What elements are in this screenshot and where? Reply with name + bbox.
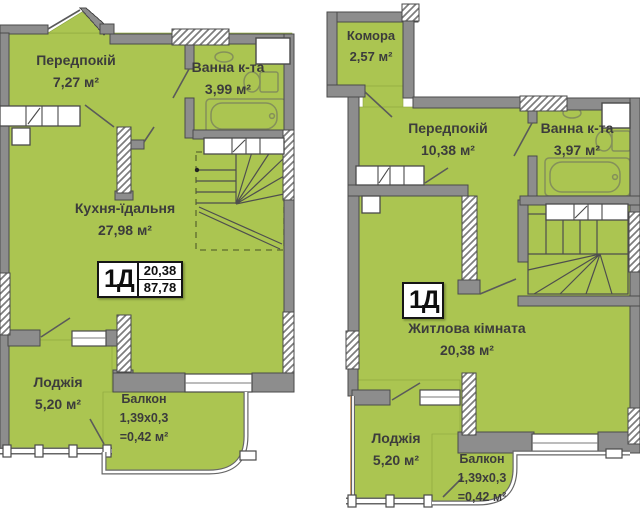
room-name: Лоджія	[6, 371, 110, 393]
apartment-type: 1Д	[99, 263, 137, 296]
room-name: Ванна к-та	[176, 56, 280, 78]
room-label-hallway-2: Передпокій 10,38 м²	[380, 117, 516, 162]
room-name: Ванна к-та	[524, 117, 630, 139]
room-label-storage-2: Комора 2,57 м²	[333, 26, 409, 68]
window-living-level-2	[532, 434, 598, 452]
room-label-loggia-1: Лоджія 5,20 м²	[6, 371, 110, 416]
room-label-living-2: Житлова кімната 20,38 м²	[383, 317, 551, 362]
room-name: Балкон	[98, 390, 190, 409]
room-label-balcony-2: Балкон 1,39х0,3 =0,42 м²	[436, 450, 528, 506]
room-area: 3,99 м²	[176, 78, 280, 100]
floorplan-canvas: Передпокій 7,27 м² Ванна к-та 3,99 м² Ку…	[0, 0, 640, 518]
apartment-badge-level-1: 1Д 20,38 87,78	[97, 261, 183, 298]
room-area: 7,27 м²	[12, 71, 140, 93]
room-area: 5,20 м²	[343, 449, 449, 471]
room-area: 27,98 м²	[45, 219, 205, 241]
room-dimensions: 1,39х0,3	[98, 409, 190, 428]
room-label-kitchen-1: Кухня-їдальня 27,98 м²	[45, 197, 205, 242]
apartment-badge-level-2: 1Д	[402, 282, 444, 319]
room-name: Комора	[333, 26, 409, 47]
apartment-area-total: 87,78	[139, 279, 182, 296]
room-label-balcony-1: Балкон 1,39х0,3 =0,42 м²	[98, 390, 190, 446]
room-area: 5,20 м²	[6, 393, 110, 415]
room-label-bathroom-1: Ванна к-та 3,99 м²	[176, 56, 280, 101]
cabinet-bath-level-2	[546, 204, 628, 220]
room-area: =0,42 м²	[98, 428, 190, 447]
room-name: Житлова кімната	[383, 317, 551, 339]
cabinet-bath-level-1	[204, 138, 284, 154]
room-name: Передпокій	[380, 117, 516, 139]
room-area: 2,57 м²	[333, 47, 409, 68]
room-name: Лоджія	[343, 427, 449, 449]
window-loggia-level-1	[72, 331, 106, 346]
room-name: Балкон	[436, 450, 528, 469]
window-kitchen-level-1	[185, 374, 252, 392]
room-dimensions: 1,39х0,3	[436, 469, 528, 488]
room-area: 3,97 м²	[524, 139, 630, 161]
room-label-loggia-2: Лоджія 5,20 м²	[343, 427, 449, 472]
apartment-type: 1Д	[404, 284, 442, 317]
room-area: 20,38 м²	[383, 339, 551, 361]
room-label-hallway-1: Передпокій 7,27 м²	[12, 49, 140, 94]
apartment-area-level: 20,38	[139, 263, 182, 279]
room-name: Кухня-їдальня	[45, 197, 205, 219]
window-loggia-level-2	[420, 390, 460, 405]
room-name: Передпокій	[12, 49, 140, 71]
room-label-bathroom-2: Ванна к-та 3,97 м²	[524, 117, 630, 162]
apartment-areas: 20,38 87,78	[137, 263, 182, 296]
room-area: 10,38 м²	[380, 139, 516, 161]
room-area: =0,42 м²	[436, 488, 528, 507]
